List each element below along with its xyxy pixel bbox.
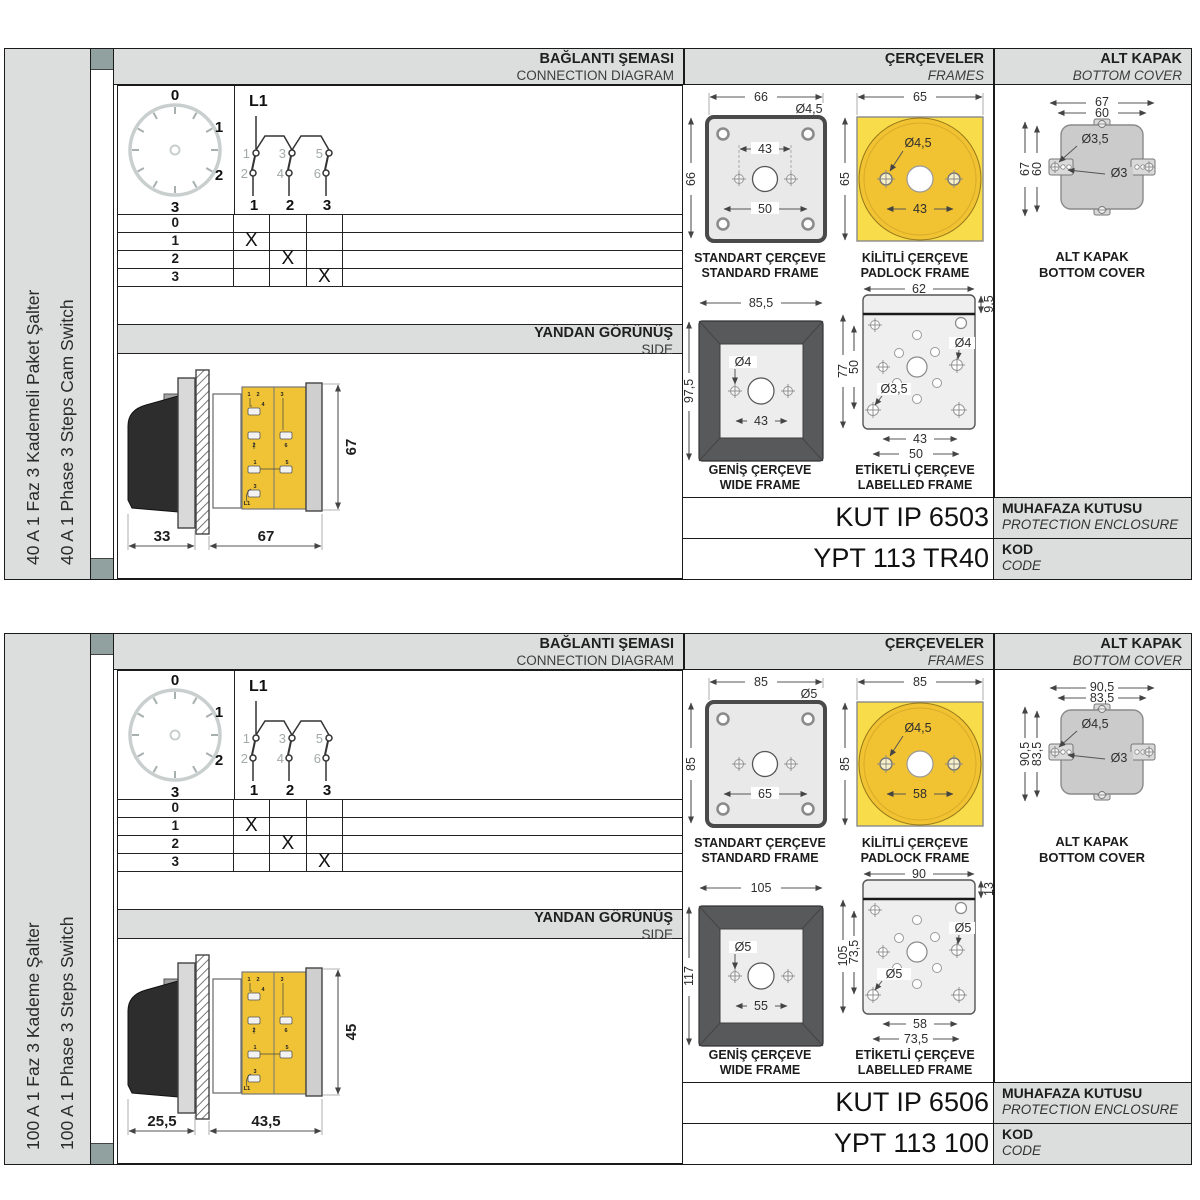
center-shaft-hole (753, 167, 778, 192)
bottom-dim-1: 58 (883, 1017, 957, 1031)
wide-frame-drawing: 105 117 Ø5 55 (683, 880, 837, 1048)
enclosure-label-en: PROTECTION ENCLOSURE (1002, 517, 1191, 533)
bottom-cover-caption: ALT KAPAK BOTTOM COVER (993, 834, 1191, 866)
contact-number: 2 (241, 751, 248, 766)
enclosure-label-tr: MUHAFAZA KUTUSU (1002, 500, 1191, 517)
side-view-title-tr: YANDAN GÖRÜNÜŞ (118, 325, 673, 342)
height-dimension: 45 (323, 969, 360, 1095)
header-frames-en: FRAMES (683, 653, 984, 668)
spine-strip (91, 49, 114, 579)
dim-b2: 50 (909, 447, 923, 461)
switch-dial-cell: 0 1 2 3 (118, 671, 235, 799)
caption-en: BOTTOM COVER (993, 850, 1191, 866)
bottom-cover-drawing: 67 60 67 60 (1013, 95, 1173, 225)
switch-handle (128, 981, 178, 1097)
code-row: YPT 113 TR40 KOD CODE (683, 538, 1191, 579)
dim-bottom: 50 (758, 202, 772, 216)
center-shaft-hole (907, 166, 933, 192)
row-label: 1 (118, 818, 234, 835)
caption-tr: ETİKETLİ ÇERÇEVE (837, 463, 993, 478)
header-connection-en: CONNECTION DIAGRAM (114, 68, 674, 83)
dim-width: 85,5 (749, 296, 773, 310)
center-shaft-hole (748, 378, 774, 404)
body-terminal-label: 6 (284, 1028, 287, 1034)
side-view-header: YANDAN GÖRÜNÜŞ SIDE (118, 324, 682, 354)
spine-square-top (91, 634, 113, 655)
mark-cell (234, 836, 271, 853)
hole-small-label: Ø5 (886, 967, 903, 981)
product-title-english: 40 A 1 Phase 3 Steps Cam Switch (57, 299, 78, 565)
terminal-number: 2 (286, 782, 294, 799)
product-sidebar: 40 A 1 Faz 3 Kademeli Paket Şalter 40 A … (5, 49, 91, 579)
contact-number: 3 (279, 731, 286, 746)
table-row: 2 X (118, 835, 682, 853)
left-lug (1049, 159, 1073, 175)
product-sidebar: 100 A 1 Faz 3 Kademe Şalter 100 A 1 Phas… (5, 634, 91, 1164)
body-terminal-label: 2 (252, 443, 255, 449)
product-block-2: 100 A 1 Faz 3 Kademe Şalter 100 A 1 Phas… (4, 633, 1192, 1165)
center-shaft-hole (907, 357, 927, 377)
labelled-frame-drawing: 62 9,5 77 50 (837, 283, 993, 463)
bottom-dim-2: 73,5 (873, 1032, 959, 1046)
dial-position-2: 2 (215, 167, 223, 184)
dim-width: 85 (913, 675, 927, 689)
row-filler (343, 836, 682, 853)
body-terminal-label: 5 (285, 460, 288, 466)
table-row: 0 (118, 214, 682, 232)
hole-diameter-label: Ø4,5 (795, 102, 822, 116)
code-label-tr: KOD (1002, 541, 1191, 558)
dim-b2: 73,5 (904, 1032, 928, 1046)
wide-frame-caption: GENİŞ ÇERÇEVE WIDE FRAME (683, 1048, 837, 1078)
side-view-drawing: 1 2 4 2 3 6 1 3 5 L1 67 (118, 354, 681, 578)
dial-position-3: 3 (171, 199, 179, 214)
dim-h2: 60 (1030, 162, 1044, 176)
body-terminal-label: L1 (244, 1086, 250, 1092)
mark-cell (270, 269, 307, 286)
header-frames: ÇERÇEVELER FRAMES (683, 49, 993, 84)
padlock-frame-drawing: 65 65 Ø4,5 43 (837, 89, 993, 251)
dim-height: 85 (684, 757, 698, 771)
circuit-schematic: L1 1 2 1 3 (235, 86, 681, 214)
code-label-en: CODE (1002, 1143, 1191, 1159)
enclosure-value: KUT IP 6503 (683, 498, 989, 538)
standard-frame-caption: STANDART ÇERÇEVE STANDARD FRAME (683, 836, 837, 866)
center-shaft-hole (907, 751, 933, 777)
code-label-en: CODE (1002, 558, 1191, 574)
hole2-label: Ø3 (1111, 166, 1128, 180)
connection-diagram-box: 0 1 2 3 L1 1 2 1 (117, 85, 683, 579)
header-cover-tr: ALT KAPAK (993, 51, 1182, 68)
connection-diagram-box: 0 1 2 3 L1 1 2 1 (117, 670, 683, 1164)
dim-inner-height: 73,5 (847, 940, 861, 964)
caption-tr: STANDART ÇERÇEVE (683, 251, 837, 266)
hole-diameter-label: Ø4,5 (904, 721, 931, 735)
body-terminal-label: 1 (247, 392, 250, 398)
caption-en: WIDE FRAME (683, 478, 837, 493)
contact-pole-3: 5 6 3 (314, 731, 332, 799)
table-row: 3 X (118, 268, 682, 287)
code-label-cell: KOD CODE (993, 1124, 1191, 1164)
switching-table: 0 1 X 2 X 3 (118, 799, 682, 872)
caption-en: LABELLED FRAME (837, 1063, 993, 1078)
product-title-turkish: 100 A 1 Faz 3 Kademe Şalter (23, 922, 44, 1150)
header-cover-en: BOTTOM COVER (993, 653, 1182, 668)
dim-height: 66 (684, 172, 698, 186)
contact-number: 6 (314, 166, 321, 181)
caption-en: WIDE FRAME (683, 1063, 837, 1078)
standard-frame-drawing: 85 Ø5 85 (683, 674, 837, 836)
standard-frame-caption: STANDART ÇERÇEVE STANDARD FRAME (683, 251, 837, 281)
wide-frame-caption: GENİŞ ÇERÇEVE WIDE FRAME (683, 463, 837, 493)
caption-tr: ALT KAPAK (993, 834, 1191, 850)
switch-front-body (213, 979, 241, 1093)
row-label: 3 (118, 269, 234, 286)
dim-body-depth: 43,5 (251, 1113, 280, 1130)
section-header-band: BAĞLANTI ŞEMASI CONNECTION DIAGRAM ÇERÇE… (114, 634, 1191, 670)
contact-pole-3: 5 6 3 (314, 146, 332, 214)
side-view-drawing: 1 2 4 2 3 6 1 3 5 L1 45 (118, 939, 681, 1163)
right-lug (1131, 159, 1155, 175)
hole2-label: Ø3 (1111, 751, 1128, 765)
header-divider-1 (683, 49, 685, 85)
header-connection-tr: BAĞLANTI ŞEMASI (114, 51, 674, 68)
bottom-cover-drawing: 90,5 83,5 90,5 83,5 (1013, 680, 1173, 810)
rotary-dial-drawing: 0 1 2 3 (118, 671, 235, 799)
header-frames: ÇERÇEVELER FRAMES (683, 634, 993, 669)
row-label: 2 (118, 251, 234, 268)
switch-yellow-body: 1 2 4 2 3 6 1 3 5 L1 (242, 387, 306, 509)
switch-yellow-body: 1 2 4 2 3 6 1 3 5 L1 (242, 972, 306, 1094)
caption-tr: GENİŞ ÇERÇEVE (683, 463, 837, 478)
caption-en: STANDARD FRAME (683, 851, 837, 866)
phase-label: L1 (249, 678, 268, 695)
header-connection-diagram: BAĞLANTI ŞEMASI CONNECTION DIAGRAM (114, 634, 683, 669)
hole-big-label: Ø5 (955, 921, 972, 935)
row-label: 0 (118, 800, 234, 817)
dim-height: 65 (838, 172, 852, 186)
enclosure-row: KUT IP 6503 MUHAFAZA KUTUSU PROTECTION E… (683, 497, 1191, 538)
circuit-cell: L1 1 2 1 3 (235, 86, 681, 214)
dial-position-2: 2 (215, 752, 223, 769)
switch-dial-cell: 0 1 2 3 (118, 86, 235, 214)
body-terminal-label: 6 (284, 443, 287, 449)
row-label: 1 (118, 233, 234, 250)
mark-cell (234, 269, 271, 286)
dial-position-0: 0 (171, 87, 179, 104)
mark-cell: X (307, 854, 344, 871)
table-row: 1 X (118, 817, 682, 835)
row-filler (343, 215, 682, 232)
right-lug (1131, 744, 1155, 760)
header-frames-en: FRAMES (683, 68, 984, 83)
labelled-frame-drawing: 90 13 105 73,5 (837, 868, 993, 1048)
contact-number: 5 (316, 146, 323, 161)
row-filler (343, 251, 682, 268)
body-terminal-label: L1 (244, 501, 250, 507)
mark-cell (307, 215, 344, 232)
contact-number: 3 (279, 146, 286, 161)
body-terminal-label: 3 (253, 484, 256, 490)
spine-square-bottom (91, 1143, 113, 1164)
contact-pole-1: 1 2 1 (241, 731, 259, 799)
mark-cell (307, 233, 344, 250)
padlock-frame-caption: KİLİTLİ ÇERÇEVE PADLOCK FRAME (837, 251, 993, 281)
dial-position-1: 1 (215, 119, 223, 136)
product-title-turkish: 40 A 1 Faz 3 Kademeli Paket Şalter (23, 290, 44, 565)
body-terminal-label: 2 (256, 392, 259, 398)
dim-width: 90 (912, 868, 926, 881)
header-frames-tr: ÇERÇEVELER (683, 636, 984, 653)
contact-number: 1 (243, 146, 250, 161)
hole-diameter-label: Ø4,5 (904, 136, 931, 150)
mark-cell (270, 800, 307, 817)
product-block-1: 40 A 1 Faz 3 Kademeli Paket Şalter 40 A … (4, 48, 1192, 580)
dim-b1: 43 (913, 432, 927, 446)
dim-inner: 55 (754, 999, 768, 1013)
caption-en: PADLOCK FRAME (837, 851, 993, 866)
dial-position-0: 0 (171, 672, 179, 689)
dim-body-depth: 67 (258, 528, 275, 545)
switch-front-body (213, 394, 241, 508)
enclosure-label-cell: MUHAFAZA KUTUSU PROTECTION ENCLOSURE (993, 498, 1191, 538)
dim-w2: 60 (1095, 106, 1109, 120)
row-filler (343, 854, 682, 871)
side-view-header: YANDAN GÖRÜNÜŞ SIDE (118, 909, 682, 939)
dim-h2: 83,5 (1030, 742, 1044, 766)
enclosure-value: KUT IP 6506 (683, 1083, 989, 1123)
contact-pole-1: 1 2 1 (241, 146, 259, 214)
caption-tr: GENİŞ ÇERÇEVE (683, 1048, 837, 1063)
bottom-cover-caption: ALT KAPAK BOTTOM COVER (993, 249, 1191, 281)
dim-width: 65 (913, 90, 927, 104)
labelled-frame-caption: ETİKETLİ ÇERÇEVE LABELLED FRAME (837, 463, 993, 492)
enclosure-row: KUT IP 6506 MUHAFAZA KUTUSU PROTECTION E… (683, 1082, 1191, 1123)
body-terminal-label: 1 (253, 460, 256, 466)
code-value: YPT 113 TR40 (683, 539, 989, 579)
header-connection-diagram: BAĞLANTI ŞEMASI CONNECTION DIAGRAM (114, 49, 683, 84)
dim-handle-depth: 33 (154, 528, 171, 545)
enclosure-label-tr: MUHAFAZA KUTUSU (1002, 1085, 1191, 1102)
contact-pole-2: 3 4 2 (277, 731, 295, 799)
rear-plate (306, 383, 322, 511)
circuit-schematic: L1 1 2 1 3 (235, 671, 681, 799)
header-bottom-cover: ALT KAPAK BOTTOM COVER (993, 49, 1191, 84)
contact-number: 4 (277, 166, 284, 181)
enclosure-label-en: PROTECTION ENCLOSURE (1002, 1102, 1191, 1118)
rear-plate (306, 968, 322, 1096)
caption-tr: KİLİTLİ ÇERÇEVE (837, 251, 993, 266)
contact-number: 1 (243, 731, 250, 746)
row-label: 2 (118, 836, 234, 853)
header-divider-1 (683, 634, 685, 670)
mark-cell (270, 854, 307, 871)
caption-tr: ETİKETLİ ÇERÇEVE (837, 1048, 993, 1063)
header-frames-tr: ÇERÇEVELER (683, 51, 984, 68)
side-view-title-tr: YANDAN GÖRÜNÜŞ (118, 910, 673, 927)
dim-width: 85 (754, 675, 768, 689)
body-terminal-label: 1 (253, 1045, 256, 1051)
hole1-label: Ø3,5 (1081, 132, 1108, 146)
bottom-dim-1: 43 (883, 432, 957, 446)
mark-cell (234, 251, 271, 268)
caption-en: LABELLED FRAME (837, 478, 993, 493)
caption-en: PADLOCK FRAME (837, 266, 993, 281)
dim-inner: 43 (913, 202, 927, 216)
code-label-cell: KOD CODE (993, 539, 1191, 579)
mark-cell (307, 818, 344, 835)
header-cover-tr: ALT KAPAK (993, 636, 1182, 653)
contact-number: 6 (314, 751, 321, 766)
product-title-english: 100 A 1 Phase 3 Steps Switch (57, 917, 78, 1151)
caption-en: BOTTOM COVER (993, 265, 1191, 281)
header-bottom-cover: ALT KAPAK BOTTOM COVER (993, 634, 1191, 669)
row-label: 0 (118, 215, 234, 232)
dim-width: 66 (754, 90, 768, 104)
dim-b1: 58 (913, 1017, 927, 1031)
header-cover-en: BOTTOM COVER (993, 68, 1182, 83)
body-terminal-label: 5 (285, 1045, 288, 1051)
header-connection-en: CONNECTION DIAGRAM (114, 653, 674, 668)
mark-cell: X (234, 818, 271, 835)
table-row: 1 X (118, 232, 682, 250)
contact-number: 2 (241, 166, 248, 181)
row-filler (343, 269, 682, 286)
dim-width: 105 (751, 881, 772, 895)
dim-strip: 9,5 (982, 295, 993, 312)
standard-frame-drawing: 66 Ø4,5 66 43 (683, 89, 837, 251)
body-terminal-label: 2 (252, 1028, 255, 1034)
body-depth-dimension: 43,5 (209, 1099, 322, 1135)
dial-position-1: 1 (215, 704, 223, 721)
bottom-dim-2: 50 (873, 447, 959, 461)
height-dimension: 67 (323, 384, 360, 510)
row-label: 3 (118, 854, 234, 871)
left-lug (1049, 744, 1073, 760)
mark-cell: X (234, 233, 271, 250)
table-row: 3 X (118, 853, 682, 872)
terminal-number: 1 (250, 197, 258, 214)
hole-big-label: Ø4 (955, 336, 972, 350)
front-plate (178, 963, 195, 1113)
hole-small-label: Ø3,5 (880, 382, 907, 396)
wide-frame-drawing: 85,5 97,5 Ø4 43 (683, 295, 837, 463)
row-filler (343, 800, 682, 817)
row-filler (343, 233, 682, 250)
section-header-band: BAĞLANTI ŞEMASI CONNECTION DIAGRAM ÇERÇE… (114, 49, 1191, 85)
hole-diameter-label: Ø5 (801, 687, 818, 701)
labelled-frame-caption: ETİKETLİ ÇERÇEVE LABELLED FRAME (837, 1048, 993, 1077)
enclosure-label-cell: MUHAFAZA KUTUSU PROTECTION ENCLOSURE (993, 1083, 1191, 1123)
mark-cell (270, 215, 307, 232)
mark-cell: X (270, 251, 307, 268)
dim-width: 62 (912, 283, 926, 296)
mark-cell: X (307, 269, 344, 286)
dim-handle-depth: 25,5 (147, 1113, 176, 1130)
dim-inner: 43 (758, 142, 772, 156)
spine-square-top (91, 49, 113, 70)
dim-inner-height: 50 (847, 360, 861, 374)
panel-plate-hatched (196, 370, 209, 534)
panel-plate-hatched (196, 955, 209, 1119)
terminal-number: 1 (250, 782, 258, 799)
center-shaft-hole (748, 963, 774, 989)
contact-number: 4 (277, 751, 284, 766)
center-shaft-hole (907, 942, 927, 962)
front-plate (178, 378, 195, 528)
contact-number: 5 (316, 731, 323, 746)
dial-position-3: 3 (171, 784, 179, 799)
code-value: YPT 113 100 (683, 1124, 989, 1164)
phase-label: L1 (249, 93, 268, 110)
dim-height: 117 (683, 966, 696, 986)
code-label-tr: KOD (1002, 1126, 1191, 1143)
terminal-number: 3 (323, 782, 331, 799)
dim-bottom: 65 (758, 787, 772, 801)
padlock-frame-caption: KİLİTLİ ÇERÇEVE PADLOCK FRAME (837, 836, 993, 866)
circuit-cell: L1 1 2 1 3 (235, 671, 681, 799)
body-terminal-label: 3 (280, 392, 283, 398)
body-depth-dimension: 67 (209, 514, 322, 550)
dim-inner: 43 (754, 414, 768, 428)
table-row: 0 (118, 799, 682, 817)
header-connection-tr: BAĞLANTI ŞEMASI (114, 636, 674, 653)
spine-square-bottom (91, 558, 113, 579)
dim-w2: 83,5 (1090, 691, 1114, 705)
dim-height: 45 (343, 1024, 360, 1041)
caption-tr: ALT KAPAK (993, 249, 1191, 265)
dim-height: 67 (343, 439, 360, 456)
body-terminal-label: 3 (253, 1069, 256, 1075)
dim-inner: 58 (913, 787, 927, 801)
dim-height: 85 (838, 757, 852, 771)
padlock-frame-drawing: 85 85 Ø4,5 58 (837, 674, 993, 836)
mark-cell: X (270, 836, 307, 853)
spine-strip (91, 634, 114, 1164)
dim-strip: 13 (982, 882, 993, 896)
caption-tr: STANDART ÇERÇEVE (683, 836, 837, 851)
caption-en: STANDARD FRAME (683, 266, 837, 281)
body-terminal-label: 3 (280, 977, 283, 983)
switch-handle (128, 396, 178, 512)
switching-table: 0 1 X 2 X 3 (118, 214, 682, 287)
hole-diameter-label: Ø5 (735, 940, 752, 954)
row-filler (343, 818, 682, 835)
mark-cell (307, 800, 344, 817)
hole-diameter-label: Ø4 (735, 355, 752, 369)
mark-cell (234, 854, 271, 871)
caption-tr: KİLİTLİ ÇERÇEVE (837, 836, 993, 851)
body-terminal-label: 2 (256, 977, 259, 983)
center-shaft-hole (753, 752, 778, 777)
hole1-label: Ø4,5 (1081, 717, 1108, 731)
code-row: YPT 113 100 KOD CODE (683, 1123, 1191, 1164)
body-terminal-label: 1 (247, 977, 250, 983)
terminal-number: 3 (323, 197, 331, 214)
dim-height: 97,5 (683, 379, 696, 403)
rotary-dial-drawing: 0 1 2 3 (118, 86, 235, 214)
terminal-number: 2 (286, 197, 294, 214)
contact-pole-2: 3 4 2 (277, 146, 295, 214)
table-row: 2 X (118, 250, 682, 268)
